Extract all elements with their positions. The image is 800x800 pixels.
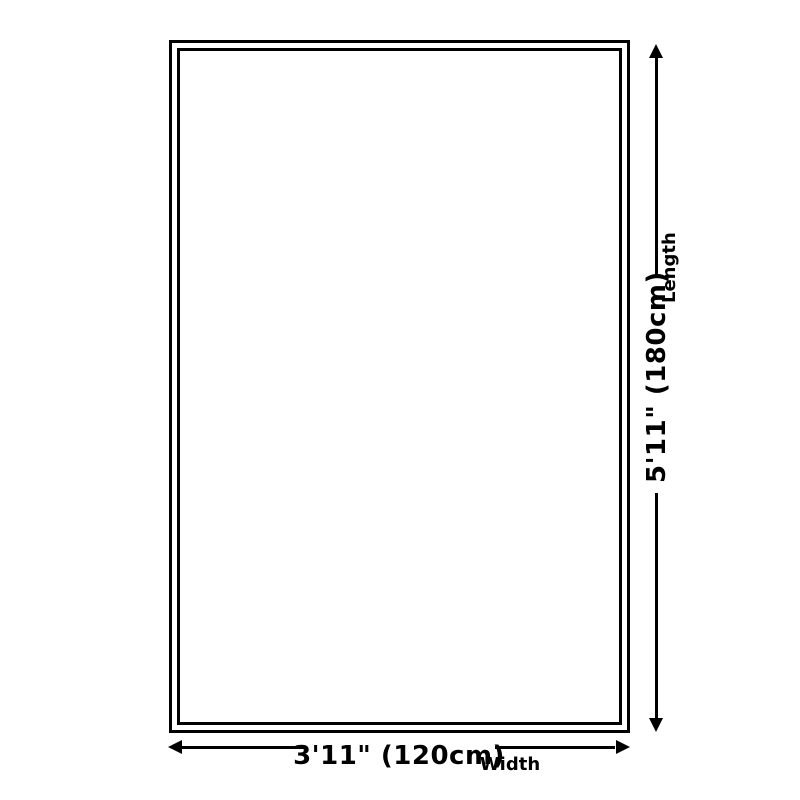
arrow-right-icon — [616, 740, 630, 754]
width-dimension-line-right — [495, 746, 615, 749]
width-axis-label: Width — [470, 755, 550, 775]
product-outline-inner — [177, 48, 622, 725]
arrow-down-icon — [649, 718, 663, 732]
length-dimension-line-top — [655, 56, 658, 278]
size-diagram: Length 5'11" (180cm) 3'11" (120cm) Width — [0, 0, 800, 800]
product-outline-outer — [169, 40, 630, 733]
length-value-label: 5'11" (180cm) — [642, 283, 672, 483]
length-dimension-line-bottom — [655, 493, 658, 719]
